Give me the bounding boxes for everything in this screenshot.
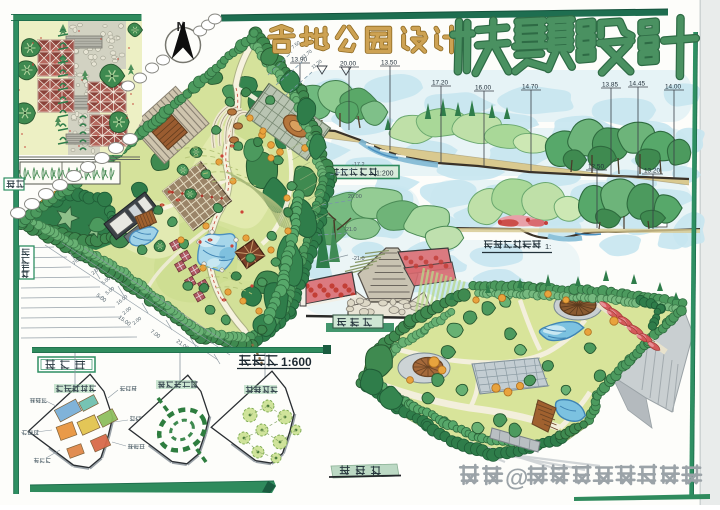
svg-text:13.20: 13.20 xyxy=(644,168,660,175)
svg-text:@: @ xyxy=(505,465,528,492)
svg-text:1:: 1: xyxy=(545,242,551,251)
svg-text:14.45: 14.45 xyxy=(629,81,645,88)
svg-text:20.00: 20.00 xyxy=(348,194,362,200)
svg-text:16.00: 16.00 xyxy=(475,85,491,92)
svg-text:1:200: 1:200 xyxy=(376,171,394,178)
svg-text:13.50: 13.50 xyxy=(381,60,397,67)
svg-text:1:600: 1:600 xyxy=(281,355,312,369)
svg-text:14.00: 14.00 xyxy=(665,84,681,91)
svg-text:17.20: 17.20 xyxy=(432,80,448,87)
svg-text:-17.2: -17.2 xyxy=(352,162,365,168)
svg-text:20.00: 20.00 xyxy=(340,61,356,68)
svg-text:-21.0: -21.0 xyxy=(344,227,357,233)
svg-text:-21.0: -21.0 xyxy=(352,256,365,262)
svg-text:14.70: 14.70 xyxy=(522,84,538,91)
svg-text:12.50: 12.50 xyxy=(588,164,604,171)
svg-text:13.85: 13.85 xyxy=(602,82,618,89)
